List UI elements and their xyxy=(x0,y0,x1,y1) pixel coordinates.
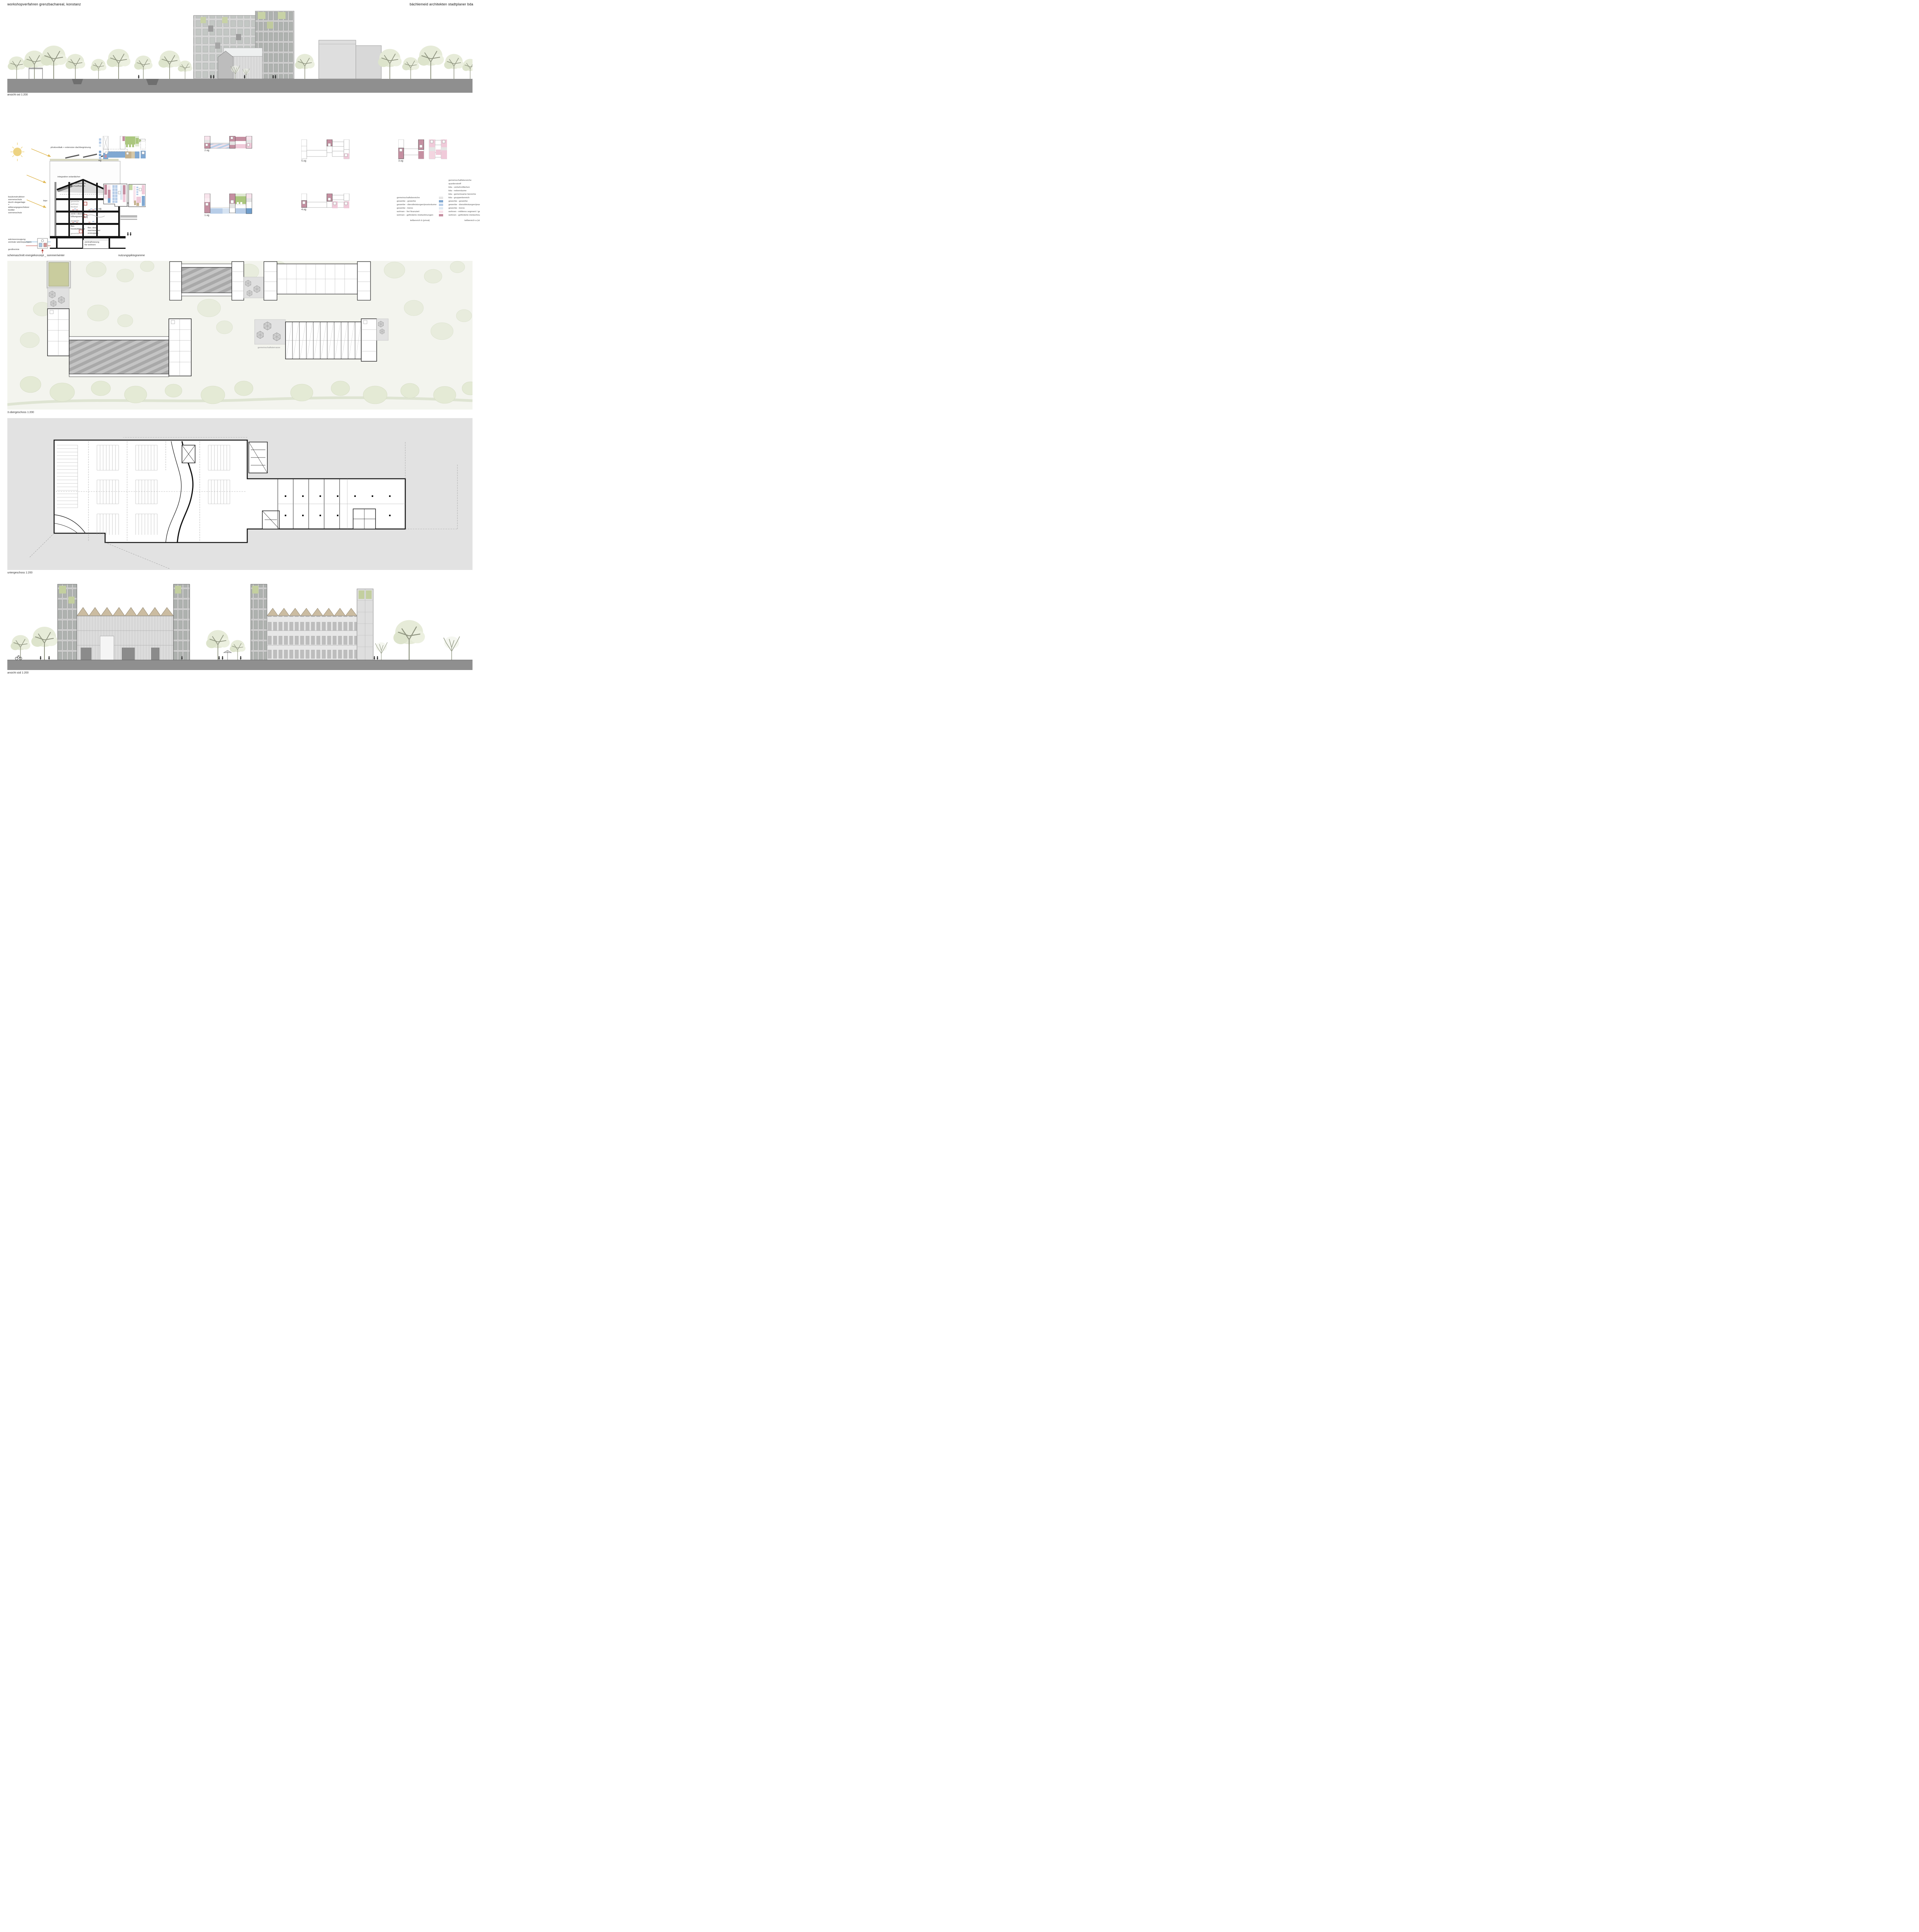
label-gemeinschaftsterrasse: gemeinschaftsterrasse xyxy=(258,347,280,349)
board-title: workshopverfahren grenzbachareal, konsta… xyxy=(7,2,81,6)
label-sonnenschutz: baukonstruktiver sonnenschutz durch steg… xyxy=(8,196,29,214)
legend-row: gewerbe - büros xyxy=(449,206,480,210)
legend-row: kita - verkehrsflächen xyxy=(449,185,480,189)
board-credit: bächlemeid architekten stadtplaner bda xyxy=(410,2,473,6)
legend-row: wohnen - mittleres segment / genossensch… xyxy=(449,210,480,213)
legend-row: wohnen - frei finanziert xyxy=(397,210,443,213)
label-zentralheizung: zentralheizung für wohnen xyxy=(85,241,99,247)
legend-swatch xyxy=(439,211,443,213)
label-geothermie: geothermie xyxy=(8,248,19,251)
legend-row: gemeinschaftsbereiche xyxy=(449,179,480,182)
legend-row: wohnen - geförderte mietwohnungen xyxy=(397,213,443,217)
label-gewerbe-unten: gewerbe xyxy=(71,233,79,235)
pikto-5og: 5.og xyxy=(301,139,350,160)
caption-ansicht-ost: ansicht ost 1:200 xyxy=(7,94,28,96)
canopy-structure xyxy=(29,68,42,79)
pikto-ug: ug xyxy=(99,184,146,207)
bicycle-icon xyxy=(15,656,22,660)
legend-column-private: gemeinschaftsbereiche gewerbe - gewerbe … xyxy=(397,196,443,222)
legend-row: quartierstreff xyxy=(449,182,480,185)
pool xyxy=(49,262,69,286)
legend-row: gewerbe - dienstleistungen/praxisräume xyxy=(397,203,443,206)
label-waermeerzeugung: wärmeerzeugung zentrale wärmepumpen xyxy=(8,238,32,244)
pikto-4og: 4.og xyxy=(301,194,350,208)
usage-legend: gemeinschaftsbereiche gewerbe - gewerbe … xyxy=(397,179,480,222)
legend-row: kita - nebenräume xyxy=(449,189,480,192)
caption-3og: 3.obergeschoss 1:200 xyxy=(7,411,34,414)
label-lueftung: zentr.+dezentr. lüftungsanlage xyxy=(71,213,85,218)
legend-swatch xyxy=(439,197,443,199)
legend-title-staedtisch: teilbereich a (städtisch) xyxy=(449,219,480,222)
floor-label-1og: 1.og xyxy=(204,214,209,217)
pikto-2og: 2.og xyxy=(204,136,253,149)
floor-label-ug: ug xyxy=(99,207,101,210)
pikto-3og: 3.og xyxy=(398,139,447,160)
label-solardaecher: integrative solardächer xyxy=(58,176,80,179)
floor-label-4og: 4.og xyxy=(301,208,306,211)
label-warmwasser: flex. dez. warmwasser erzeugung xyxy=(88,227,100,235)
legend-swatch xyxy=(439,204,443,206)
legend-swatch xyxy=(439,200,443,202)
legend-title-private: teilbereich b (privat) xyxy=(397,219,443,222)
floor-label-3og: 3.og xyxy=(398,160,403,162)
caption-nutzungspiktogramme: nutzungspiktogramme xyxy=(118,254,145,257)
ground xyxy=(7,79,473,93)
plan-ug xyxy=(7,418,473,570)
legend-row: gemeinschaftsbereiche xyxy=(397,196,443,199)
label-heizkuehldecke: flex. heizkühldecke xyxy=(71,225,85,231)
legend-row: gewerbe - gewerbe xyxy=(449,199,480,203)
elevation-east xyxy=(7,11,473,93)
sun-arrows xyxy=(27,149,51,208)
legend-column-staedtisch: gemeinschaftsbereiche quartierstreff kit… xyxy=(449,179,480,222)
legend-row: gewerbe - dienstleistungen/praxisräume xyxy=(449,203,480,206)
legend-swatch xyxy=(439,214,443,216)
caption-schemaschnitt: schemaschnitt energiekonzept _ sommer/wi… xyxy=(7,254,65,257)
floor-label-2og: 2.og xyxy=(204,149,209,152)
floor-label-eg: eg xyxy=(99,159,101,162)
legend-row: gewerbe - gewerbe xyxy=(397,199,443,203)
section-people xyxy=(127,232,131,236)
floor-label-5og: 5.og xyxy=(301,160,306,162)
left-block xyxy=(58,584,190,660)
tree-row-left xyxy=(8,46,192,79)
ground-south xyxy=(7,660,473,670)
label-dachaufbauten: hochgedämmte dachaufbauten xyxy=(70,182,86,188)
legend-row: kita - gemeinsame bereiche xyxy=(449,192,480,196)
caption-ansicht-sued: ansicht süd 1:200 xyxy=(7,672,29,674)
plan-3og-drawing xyxy=(7,261,473,410)
elevation-south xyxy=(7,578,473,670)
caption-untergeschoss: untergeschoss 1:200 xyxy=(7,571,32,574)
label-gewerbe-wohnen: gewerbe wohnen flexibel xyxy=(71,201,79,208)
center-building xyxy=(194,11,294,79)
plan-3og: gemeinschaftsterrasse xyxy=(7,261,473,410)
elevation-south-drawing xyxy=(7,578,473,670)
presentation-board: workshopverfahren grenzbachareal, konsta… xyxy=(0,0,480,679)
pikto-eg: eg xyxy=(99,136,146,159)
right-building xyxy=(319,40,381,79)
legend-swatch xyxy=(439,207,443,209)
sun-icon xyxy=(10,143,24,161)
label-bipv: bipv xyxy=(43,200,48,202)
plan-ug-drawing xyxy=(7,418,473,570)
label-photovoltaik: photovoltaik + extensive dachbegrünung xyxy=(51,146,91,149)
legend-row: gewerbe - büros xyxy=(397,206,443,210)
elevation-east-drawing xyxy=(7,11,473,93)
umbrella-icon xyxy=(224,650,231,660)
mini-swatches xyxy=(99,138,101,159)
right-block xyxy=(251,584,373,660)
label-gewerbe-mitte: gewerbe xyxy=(71,220,79,223)
pikto-1og: 1.og xyxy=(204,194,253,214)
legend-row: kita - gruppenbereich xyxy=(449,196,480,199)
legend-row: wohnen - geförderte mietwohnungen xyxy=(449,213,480,217)
